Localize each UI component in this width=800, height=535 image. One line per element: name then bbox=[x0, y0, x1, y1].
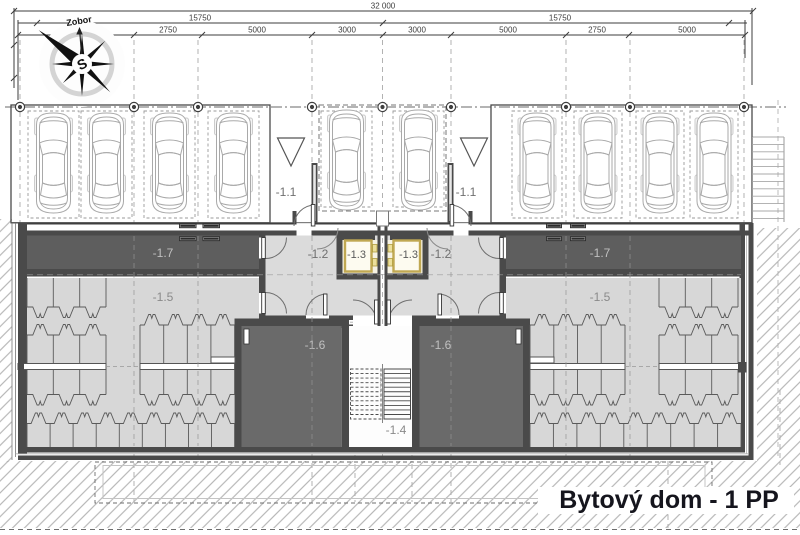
svg-text:-1.1: -1.1 bbox=[456, 185, 477, 199]
svg-text:-1.5: -1.5 bbox=[590, 290, 611, 304]
svg-text:-1.6: -1.6 bbox=[305, 338, 326, 352]
svg-text:5000: 5000 bbox=[248, 26, 266, 35]
svg-text:-1.4: -1.4 bbox=[386, 423, 407, 437]
svg-text:-1.3: -1.3 bbox=[399, 249, 418, 261]
svg-text:-1.6: -1.6 bbox=[431, 338, 452, 352]
svg-text:32 000: 32 000 bbox=[371, 2, 396, 11]
svg-text:-1.3: -1.3 bbox=[347, 249, 366, 261]
svg-text:3000: 3000 bbox=[338, 26, 356, 35]
svg-text:Bytový dom - 1 PP: Bytový dom - 1 PP bbox=[559, 486, 779, 514]
svg-text:2750: 2750 bbox=[159, 26, 177, 35]
svg-text:15750: 15750 bbox=[189, 14, 212, 23]
svg-text:-1.1: -1.1 bbox=[276, 185, 297, 199]
svg-text:2750: 2750 bbox=[588, 26, 606, 35]
svg-text:-1.2: -1.2 bbox=[431, 247, 452, 261]
svg-text:-1.5: -1.5 bbox=[153, 290, 174, 304]
svg-text:5000: 5000 bbox=[678, 26, 696, 35]
svg-text:3000: 3000 bbox=[408, 26, 426, 35]
svg-text:-1.7: -1.7 bbox=[153, 246, 174, 260]
svg-text:5000: 5000 bbox=[499, 26, 517, 35]
svg-text:15750: 15750 bbox=[549, 14, 572, 23]
svg-text:-1.7: -1.7 bbox=[590, 246, 611, 260]
